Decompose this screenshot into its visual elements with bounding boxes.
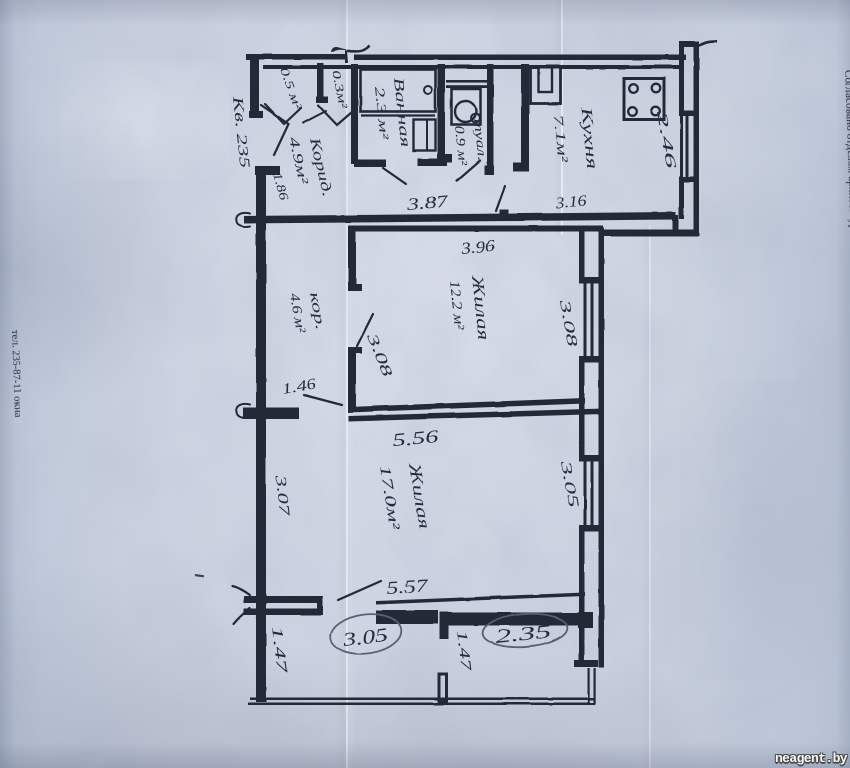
- svg-text:3.16: 3.16: [554, 192, 588, 212]
- svg-text:5.56: 5.56: [392, 426, 440, 450]
- svg-text:3.87: 3.87: [405, 191, 450, 214]
- svg-text:5.57: 5.57: [386, 575, 430, 598]
- svg-text:3.96: 3.96: [459, 236, 496, 259]
